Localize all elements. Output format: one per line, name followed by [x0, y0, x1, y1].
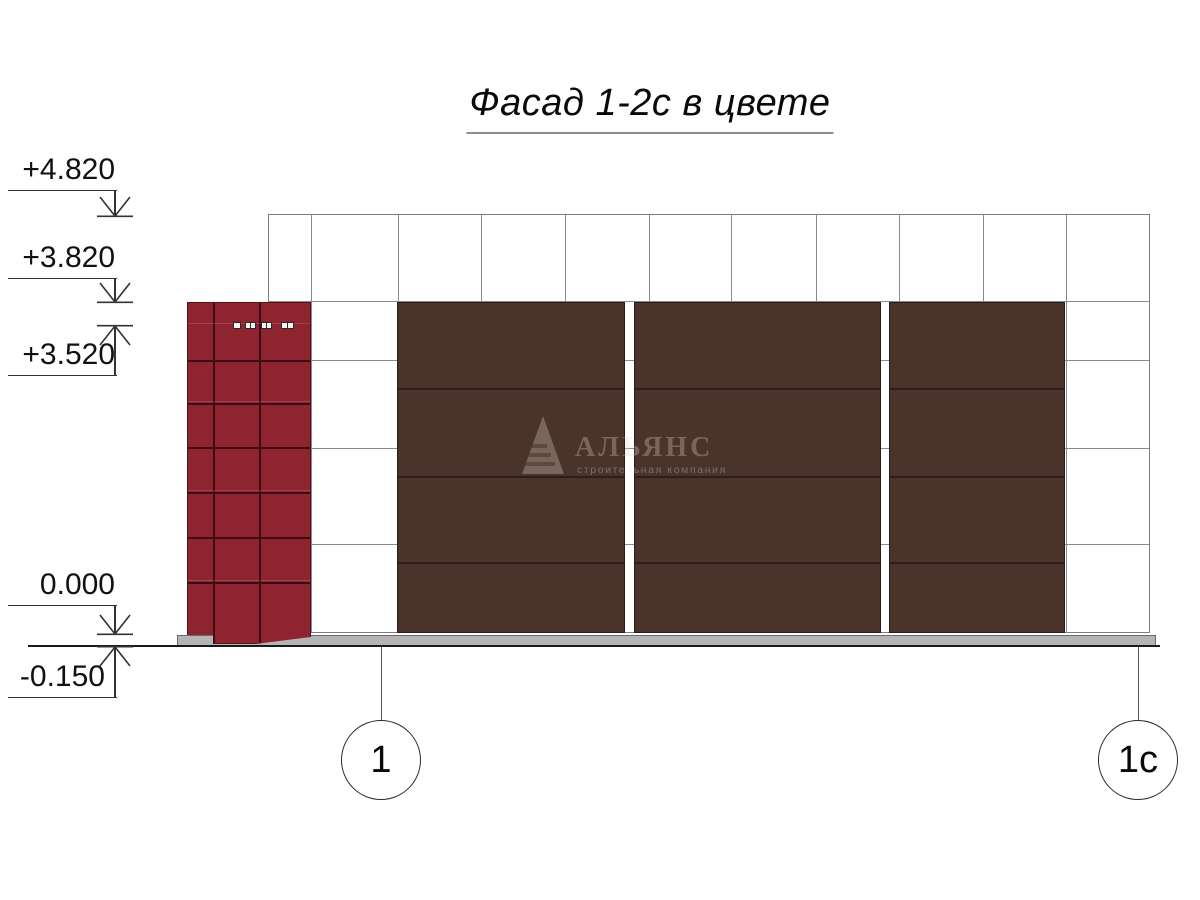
elevation-marker-4820-label: +4.820	[8, 152, 117, 191]
tile-joint-horizontal	[188, 492, 310, 494]
tile-joint-light	[188, 580, 310, 581]
axis-line-1c	[1138, 647, 1139, 720]
drawing-title: Фасад 1-2с в цвете	[466, 82, 833, 134]
watermark-company-name: АЛЬЯНС	[575, 432, 713, 464]
panel-joint	[398, 388, 624, 390]
vent-square	[250, 322, 256, 329]
drawing-title-text: Фасад 1-2с в цвете	[466, 82, 833, 134]
brown-panel-3	[889, 302, 1065, 633]
tile-joint-horizontal	[188, 360, 310, 362]
panel-joint	[890, 476, 1064, 478]
panel-joint	[890, 388, 1064, 390]
tile-joint-horizontal	[188, 537, 310, 539]
vent-square	[233, 322, 241, 329]
vent-square	[287, 322, 294, 329]
watermark-tagline: строительная компания	[577, 464, 727, 476]
down-arrow-icon	[96, 612, 134, 636]
tile-joint-horizontal	[188, 582, 310, 584]
down-arrow-icon	[96, 194, 134, 218]
tile-joint-horizontal	[188, 447, 310, 449]
axis-bubble-1c-label: 1с	[1118, 739, 1158, 782]
axis-bubble-1-label: 1	[370, 739, 391, 782]
up-arrow-icon	[96, 324, 134, 348]
grid-line-vertical	[311, 215, 312, 632]
up-arrow-icon	[96, 645, 134, 669]
axis-line-1	[381, 647, 382, 720]
down-arrow-icon	[96, 280, 134, 304]
axis-bubble-1: 1	[341, 720, 421, 800]
elevation-marker-3820-label: +3.820	[8, 240, 117, 279]
elevation-marker-0000-label: 0.000	[8, 567, 117, 606]
panel-joint	[890, 562, 1064, 564]
panel-joint	[635, 562, 880, 564]
red-tile-column	[187, 302, 311, 644]
tile-joint-light	[188, 401, 310, 402]
ground-line	[28, 645, 1160, 647]
watermark: АЛЬЯНС строительная компания	[521, 414, 741, 480]
tile-joint-vertical	[213, 303, 215, 643]
facade-drawing-sheet: { "title": { "text": "Фасад 1-2с в цвете…	[0, 0, 1200, 900]
tile-joint-horizontal	[188, 403, 310, 405]
axis-bubble-1c: 1с	[1098, 720, 1178, 800]
grid-line-vertical	[1066, 215, 1067, 632]
panel-joint	[635, 388, 880, 390]
tile-joint-vertical	[259, 303, 261, 643]
tile-joint-light	[188, 490, 310, 491]
vent-square	[266, 322, 272, 329]
panel-joint	[398, 562, 624, 564]
pyramid-logo-icon	[521, 414, 565, 476]
